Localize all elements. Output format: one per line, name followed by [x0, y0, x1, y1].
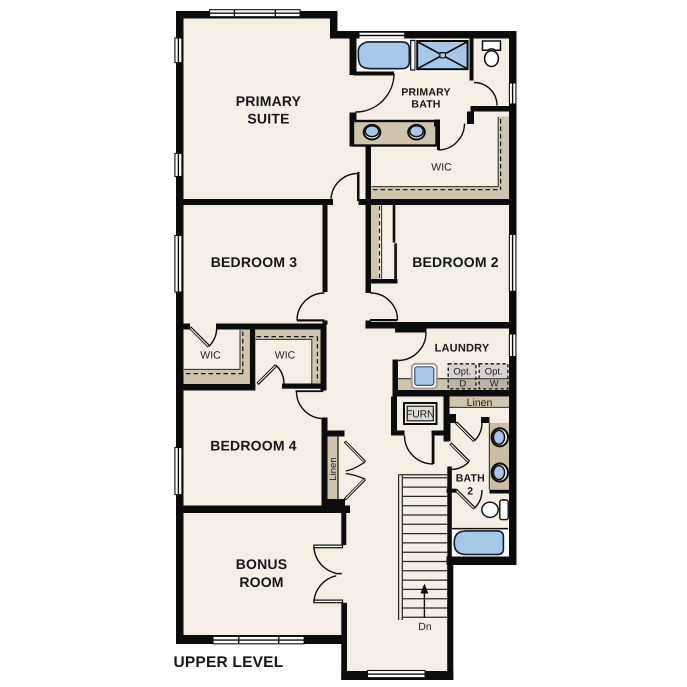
- svg-text:SUITE: SUITE: [247, 110, 289, 126]
- svg-text:Opt.: Opt.: [485, 367, 503, 378]
- svg-text:Linen: Linen: [328, 457, 339, 480]
- svg-text:ROOM: ROOM: [239, 574, 283, 590]
- svg-text:Dn: Dn: [418, 621, 432, 633]
- svg-text:2: 2: [467, 486, 473, 498]
- svg-text:PRIMARY: PRIMARY: [401, 87, 450, 99]
- svg-text:FURN: FURN: [406, 408, 434, 420]
- svg-text:W: W: [490, 379, 499, 390]
- svg-text:BATH: BATH: [456, 473, 485, 485]
- svg-text:BEDROOM 4: BEDROOM 4: [210, 438, 297, 454]
- svg-text:WIC: WIC: [200, 350, 221, 362]
- svg-text:WIC: WIC: [431, 162, 452, 174]
- svg-text:PRIMARY: PRIMARY: [236, 93, 302, 109]
- svg-text:UPPER LEVEL: UPPER LEVEL: [174, 654, 284, 671]
- svg-text:D: D: [459, 379, 466, 390]
- svg-text:BATH: BATH: [411, 99, 440, 111]
- svg-text:BEDROOM 3: BEDROOM 3: [211, 254, 298, 270]
- svg-text:LAUNDRY: LAUNDRY: [435, 343, 490, 355]
- svg-text:Opt.: Opt.: [453, 367, 471, 378]
- svg-text:BONUS: BONUS: [236, 556, 288, 572]
- svg-text:WIC: WIC: [275, 350, 296, 362]
- svg-text:Linen: Linen: [467, 397, 493, 409]
- svg-text:BEDROOM 2: BEDROOM 2: [412, 254, 499, 270]
